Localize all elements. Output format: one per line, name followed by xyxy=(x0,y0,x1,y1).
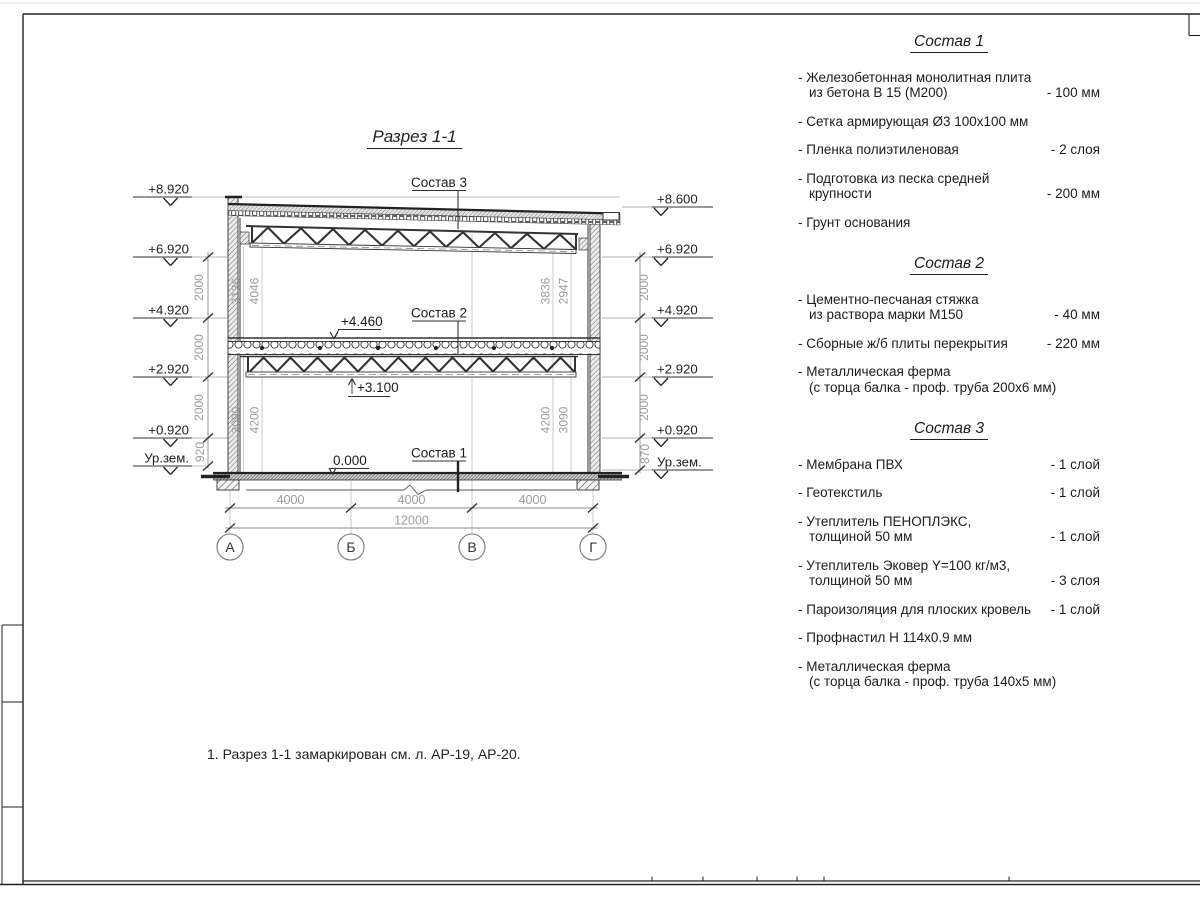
spec-section-sostav-1: Состав 1 - Железобетонная монолитная пли… xyxy=(798,34,1100,230)
elevation-right-2: +4.920 xyxy=(657,303,698,318)
spec-item: - Профнастил Н 114х0.9 мм xyxy=(798,630,1100,646)
sheet-note: 1. Разрез 1-1 замаркирован см. л. АР-19,… xyxy=(207,746,521,762)
sostav1-label: Состав 1 xyxy=(411,446,467,461)
chain-left-3: 920 xyxy=(193,442,207,462)
inner-dim-tl2: 4046 xyxy=(248,277,262,304)
spec-item: - Сборные ж/б плиты перекрытия - 220 мм xyxy=(798,336,1100,352)
elevation-left-0: +8.920 xyxy=(148,182,189,197)
level-mid-top: +4.460 xyxy=(341,314,383,329)
spec-item: - Металлическая ферма (с торца балка - п… xyxy=(798,364,1100,395)
spec-item-name: - Сетка армирующая Ø3 100х100 мм xyxy=(798,114,1096,130)
bottom-dimensions: 4000 4000 4000 12000 А Б В Г xyxy=(217,493,606,560)
spec-item: - Цементно-песчаная стяжка из раствора м… xyxy=(798,292,1100,323)
spec-item: - Пленка полиэтиленовая - 2 слоя xyxy=(798,142,1100,158)
spec-item: - Подготовка из песка средней крупности … xyxy=(798,171,1100,202)
spec-item: - Пароизоляция для плоских кровель - 1 с… xyxy=(798,602,1100,618)
spec-item-name: - Профнастил Н 114х0.9 мм xyxy=(798,630,1096,646)
elevation-marks-right: +8.600 +6.920 +4.920 +2.920 +0.920 Ур.зе… xyxy=(192,192,713,479)
spec-section-sostav-2: Состав 2 - Цементно-песчаная стяжка из р… xyxy=(798,256,1100,395)
roof-package xyxy=(228,204,620,225)
spec-item-name: - Цементно-песчаная стяжка из раствора м… xyxy=(798,292,1050,323)
span-dim-0: 4000 xyxy=(277,493,305,507)
chain-left-0: 2000 xyxy=(192,274,206,301)
elevation-left-4: +0.920 xyxy=(148,423,189,438)
spec-item-value: - 40 мм xyxy=(1050,307,1100,323)
axis-bubbles: А Б В Г xyxy=(217,534,606,560)
spec-section-sostav-3: Состав 3 - Мембрана ПВХ - 1 слой - Геоте… xyxy=(798,421,1100,690)
total-dim: 12000 xyxy=(394,514,429,528)
elevation-right-4: +0.920 xyxy=(657,423,698,438)
inner-dim-tr1: 3836 xyxy=(539,277,553,304)
spec-item-name: - Железобетонная монолитная плита из бет… xyxy=(798,70,1043,101)
spec-item-name: - Геотекстиль xyxy=(798,485,1047,501)
spec-item-value: - 3 слоя xyxy=(1047,573,1100,589)
dim-chain-right: 2000 2000 2000 870 xyxy=(635,252,652,475)
elevation-right-1: +6.920 xyxy=(657,242,698,257)
spec-item: - Грунт основания xyxy=(798,215,1100,231)
intermediate-floor xyxy=(228,338,600,355)
inner-dim-bl2: 4200 xyxy=(248,406,262,433)
spec-item-name: - Пароизоляция для плоских кровель xyxy=(798,602,1047,618)
floor-truss xyxy=(240,357,578,378)
spec-item: - Мембрана ПВХ - 1 слой xyxy=(798,457,1100,473)
drawing-title-text: Разрез 1-1 xyxy=(367,127,461,149)
inner-dim-tr2: 2947 xyxy=(557,277,571,304)
spec-item: - Утеплитель Эковер Y=100 кг/м3, толщино… xyxy=(798,558,1100,589)
spec-item-name: - Грунт основания xyxy=(798,215,1096,231)
spec-items-sostav-2: - Цементно-песчаная стяжка из раствора м… xyxy=(798,292,1100,396)
ground-slab xyxy=(201,473,629,495)
spec-item-value: - 200 мм xyxy=(1043,186,1100,202)
elevation-left-1: +6.920 xyxy=(148,242,189,257)
roof-truss xyxy=(240,226,588,254)
chain-right-3: 870 xyxy=(638,444,652,464)
spec-item-name: - Утеплитель ПЕНОПЛЭКС, толщиной 50 мм xyxy=(798,514,1047,545)
span-dim-2: 4000 xyxy=(519,493,547,507)
spec-item: - Утеплитель ПЕНОПЛЭКС, толщиной 50 мм -… xyxy=(798,514,1100,545)
spec-item-name: - Металлическая ферма (с торца балка - п… xyxy=(798,659,1096,690)
sostav-labels: Состав 3 Состав 2 Состав 1 +4.460 +3.100… xyxy=(329,175,467,492)
spec-item-name: - Мембрана ПВХ xyxy=(798,457,1047,473)
axis-label-v: В xyxy=(467,539,476,555)
spec-item-name: - Металлическая ферма (с торца балка - п… xyxy=(798,364,1096,395)
drawing-sheet: { "sheet": { "title": "Разрез 1-1", "not… xyxy=(0,0,1200,900)
spec-item-value: - 1 слой xyxy=(1047,602,1100,618)
spec-item: - Металлическая ферма (с торца балка - п… xyxy=(798,659,1100,690)
spec-item-value: - 1 слой xyxy=(1047,529,1100,545)
spec-item: - Геотекстиль - 1 слой xyxy=(798,485,1100,501)
left-margin-cells xyxy=(2,625,23,884)
title-block-ticks xyxy=(652,877,1009,882)
inner-dim-br1: 4200 xyxy=(539,406,553,433)
spec-title-sostav-1: Состав 1 xyxy=(798,34,1100,50)
spec-item-name: - Подготовка из песка средней крупности xyxy=(798,171,1043,202)
spec-item-value: - 1 слой xyxy=(1047,457,1100,473)
spec-items-sostav-1: - Железобетонная монолитная плита из бет… xyxy=(798,70,1100,231)
chain-right-0: 2000 xyxy=(637,274,651,301)
chain-right-2: 2000 xyxy=(637,394,651,421)
drawing-title: Разрез 1-1 xyxy=(332,127,497,147)
spec-item-value: - 100 мм xyxy=(1043,85,1100,101)
elevation-marks-left: +8.920 +6.920 +4.920 +2.920 +0.920 Ур.зе… xyxy=(133,182,192,475)
spec-item-name: - Утеплитель Эковер Y=100 кг/м3, толщино… xyxy=(798,558,1047,589)
sostav3-label: Состав 3 xyxy=(411,175,467,190)
sostav2-label: Состав 2 xyxy=(411,306,467,321)
spec-item-value: - 220 мм xyxy=(1043,336,1100,352)
span-dim-1: 4000 xyxy=(398,493,426,507)
spec-item-value: - 2 слоя xyxy=(1047,142,1100,158)
chain-left-2: 2000 xyxy=(192,394,206,421)
spec-item-name: - Сборные ж/б плиты перекрытия xyxy=(798,336,1043,352)
elevation-left-5: Ур.зем. xyxy=(144,451,189,466)
inner-dim-tl1: 3136 xyxy=(229,277,243,304)
chain-right-1: 2000 xyxy=(637,334,651,361)
spec-column: Состав 1 - Железобетонная монолитная пли… xyxy=(798,34,1100,703)
spec-item: - Сетка армирующая Ø3 100х100 мм xyxy=(798,114,1100,130)
axis-label-a: А xyxy=(225,539,235,555)
spec-item-name: - Пленка полиэтиленовая xyxy=(798,142,1047,158)
axis-label-b: Б xyxy=(346,539,355,555)
interior-dims: 3136 4046 3836 2947 3090 4200 4200 3090 xyxy=(229,277,571,433)
level-mid-truss: +3.100 xyxy=(357,380,399,395)
elevation-right-3: +2.920 xyxy=(657,362,698,377)
axis-label-g: Г xyxy=(589,539,597,555)
top-right-box xyxy=(1189,14,1200,36)
inner-dim-bl1: 3090 xyxy=(229,406,243,433)
spec-item-value: - 1 слой xyxy=(1047,485,1100,501)
spec-items-sostav-3: - Мембрана ПВХ - 1 слой - Геотекстиль - … xyxy=(798,457,1100,690)
spec-item: - Железобетонная монолитная плита из бет… xyxy=(798,70,1100,101)
spec-title-sostav-3: Состав 3 xyxy=(798,421,1100,437)
level-floor: 0.000 xyxy=(333,453,367,468)
elevation-left-2: +4.920 xyxy=(148,303,189,318)
elevation-right-0: +8.600 xyxy=(657,192,698,207)
spec-title-sostav-2: Состав 2 xyxy=(798,256,1100,272)
chain-left-1: 2000 xyxy=(192,334,206,361)
inner-dim-br2: 3090 xyxy=(557,406,571,433)
elevation-right-5: Ур.зем. xyxy=(657,455,702,470)
elevation-left-3: +2.920 xyxy=(148,362,189,377)
